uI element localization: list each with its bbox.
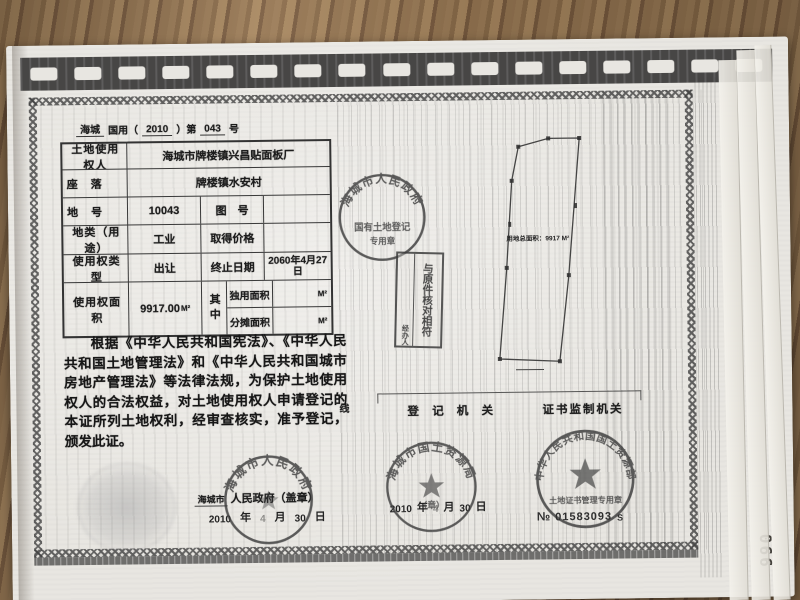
- government-seal-icon: 海城市人民政府: [220, 451, 317, 548]
- certno-suffix: S: [617, 512, 623, 522]
- table-row: 土地使用权人 海城市牌楼镇兴昌贴面板厂: [62, 141, 329, 170]
- row-value: 工业: [128, 225, 201, 254]
- row-value: 牌楼镇水安村: [128, 167, 330, 196]
- sub-value: M²: [273, 280, 331, 307]
- sub-unit: M²: [318, 289, 327, 298]
- row-label: 地 号: [63, 198, 128, 226]
- svg-text:海城市人民政府: 海城市人民政府: [338, 171, 426, 209]
- serial-suffix: 号: [229, 120, 239, 135]
- row-label: 地类（用途）: [63, 226, 128, 255]
- row-label-2: 终止日期: [202, 253, 265, 281]
- legal-text: 根据《中华人民共和国宪法》、《中华人民共和国土地管理法》和《中华人民共和国城市房…: [64, 331, 348, 451]
- certificate-page: 海城 国用（ 2010 ）第 043 号 土地使用权人 海城市牌楼镇兴昌贴面板厂…: [6, 36, 795, 600]
- sub-unit: M²: [318, 316, 327, 325]
- binding-hole: [383, 63, 410, 76]
- row-label: 使用权类型: [64, 255, 129, 283]
- seal-ring-text: 海城市人民政府: [221, 452, 316, 494]
- binding-hole: [30, 67, 57, 80]
- certificate-serial-line: 海城 国用（ 2010 ）第 043 号: [76, 119, 239, 137]
- certno-digits: 01583093: [555, 511, 612, 524]
- row-label-2: 图 号: [201, 196, 264, 224]
- binding-hole: [339, 64, 366, 77]
- verification-stamp: 经办人 与原件核对相符: [394, 251, 444, 348]
- binding-hole: [74, 67, 101, 80]
- binding-hole: [427, 63, 454, 76]
- star-icon: [258, 490, 278, 509]
- photocopy-streaks: [694, 77, 722, 577]
- sub-value: M²: [273, 307, 331, 334]
- verify-side-col: 经办人: [396, 253, 415, 345]
- row-value: 10043: [128, 197, 201, 225]
- land-registration-seal-icon: 海城市人民政府 国有土地登记 专用章: [335, 170, 430, 265]
- svg-text:海城市人民政府: 海城市人民政府: [221, 452, 316, 494]
- binding-sprocket-band: [20, 49, 772, 91]
- certificate-supervisor-label: 证书监制机关: [542, 400, 623, 417]
- binding-hole: [515, 61, 542, 74]
- binding-hole: [647, 60, 674, 73]
- seal-inner-text: 土地证书管理专用章: [549, 494, 622, 505]
- group-label: 其中: [202, 281, 228, 334]
- serial-region: 海城: [76, 121, 104, 137]
- certno-prefix: №: [537, 509, 551, 523]
- row-label: 座 落: [63, 170, 128, 198]
- row-label: 使用权面积: [64, 283, 130, 337]
- verify-side-text: 经办人: [399, 325, 409, 346]
- thread-label: 线: [339, 400, 349, 415]
- row-value-2: [264, 223, 330, 252]
- star-icon: [419, 473, 445, 498]
- row-value: 9917.00 M²: [129, 282, 203, 336]
- verify-main-text: 与原件核对相符: [419, 263, 436, 337]
- frame-border-top: [29, 90, 693, 106]
- sub-rows: 独用面积 M² 分摊面积 M²: [227, 280, 332, 334]
- sub-label: 独用面积: [227, 281, 273, 308]
- area-value: 9917.00: [140, 302, 180, 314]
- photo-of-land-certificate: 海城 国用（ 2010 ）第 043 号 土地使用权人 海城市牌楼镇兴昌贴面板厂…: [0, 0, 800, 600]
- row-value-2: [264, 195, 330, 223]
- parcel-diagram: 用地总面积：9917 M²: [483, 133, 598, 412]
- frame-border-right: [685, 90, 699, 550]
- serial-number: 043: [200, 123, 225, 135]
- certificate-table: 土地使用权人 海城市牌楼镇兴昌贴面板厂 座 落 牌楼镇水安村 地 号 10043…: [60, 139, 333, 338]
- sub-row: 独用面积 M²: [227, 280, 331, 308]
- table-row: 使用权面积 9917.00 M² 其中 独用面积 M² 分摊面积: [64, 280, 332, 336]
- row-label: 土地使用权人: [62, 144, 127, 170]
- row-value: 海城市牌楼镇兴昌贴面板厂: [127, 141, 329, 168]
- binding-hole: [603, 60, 630, 73]
- sub-label: 分摊面积: [227, 308, 273, 335]
- table-row: 地类（用途） 工业 取得价格: [63, 223, 330, 255]
- serial-part1: 国用（: [108, 121, 138, 136]
- binding-hole: [295, 64, 322, 77]
- binding-hole: [251, 65, 278, 78]
- land-bureau-seal-icon: 海城市国土资源局 （章）: [382, 437, 481, 536]
- binding-hole: [559, 61, 586, 74]
- binding-hole: [691, 59, 718, 72]
- verify-main-col: 与原件核对相符: [413, 254, 442, 347]
- binding-hole: [207, 65, 234, 78]
- binding-hole: [162, 66, 189, 79]
- table-row: 使用权类型 出让 终止日期 2060年4月27日: [64, 252, 331, 283]
- binding-hole: [471, 62, 498, 75]
- row-value: 出让: [129, 254, 202, 282]
- row-value-2: 2060年4月27日: [265, 252, 331, 280]
- seal-inner-text: （章）: [418, 499, 445, 510]
- serial-year: 2010: [142, 124, 172, 136]
- table-row: 地 号 10043 图 号: [63, 195, 330, 226]
- sub-row: 分摊面积 M²: [227, 307, 331, 334]
- seal-inner-text-1: 国有土地登记: [354, 221, 411, 233]
- table-row: 座 落 牌楼镇水安村: [63, 167, 330, 198]
- binding-hole: [118, 66, 145, 79]
- row-label-2: 取得价格: [201, 224, 264, 253]
- certificate-number: № 01583093 S: [537, 508, 624, 523]
- serial-part2: ）第: [176, 121, 196, 136]
- star-icon: [569, 458, 601, 489]
- registration-authority-label: 登 记 机 关: [407, 402, 498, 419]
- parcel-area-label: 用地总面积：9917 M²: [505, 233, 570, 243]
- seal-inner-text-2: 专用章: [370, 236, 396, 246]
- seal-ring-text: 海城市人民政府: [338, 171, 426, 209]
- area-unit: M²: [181, 304, 190, 313]
